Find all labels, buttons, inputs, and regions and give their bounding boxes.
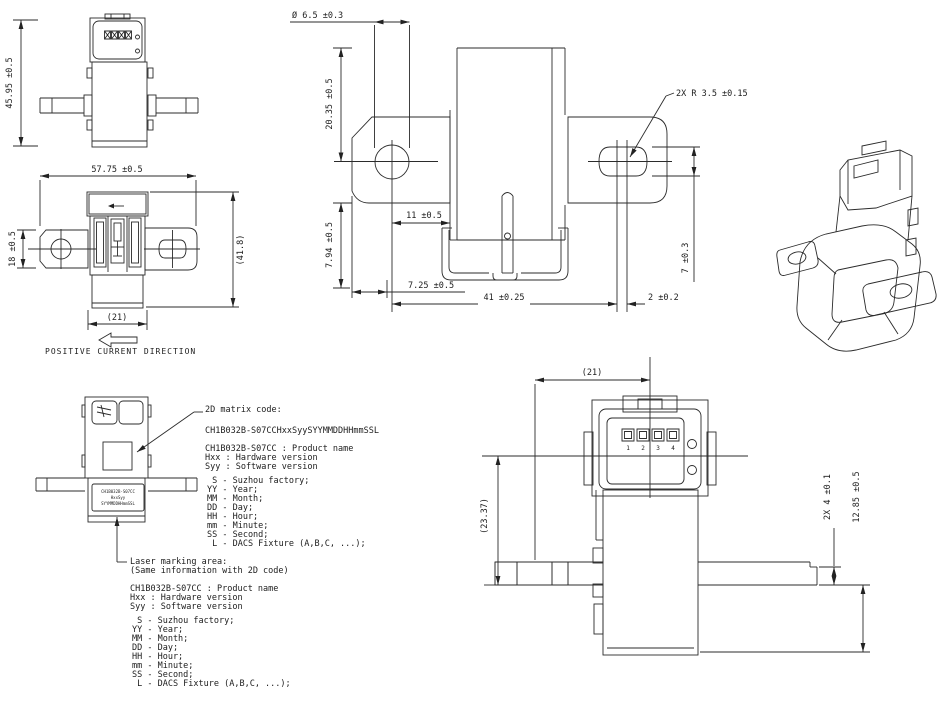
- matrix-code-software: Syy : Software version: [205, 462, 318, 472]
- laser-marking-line-3: SYYMMDDHHmmSSL: [101, 501, 135, 506]
- dim-bottom-view-radius: 2X R 3.5 ±0.15: [676, 89, 748, 99]
- laser-software: Syy : Software version: [130, 602, 243, 612]
- laser-subtitle: (Same information with 2D code): [130, 566, 289, 576]
- side-view-pin-labels: 1 2 3 4: [626, 445, 675, 452]
- dim-bottom-view-2: 2 ±0.2: [648, 293, 679, 303]
- dim-front-view-width: 57.75 ±0.5: [91, 165, 142, 175]
- engineering-drawing-canvas: 45.95 ±0.5 57.75 ±0.5 (41.8): [0, 0, 952, 705]
- top-view-linework: [40, 14, 198, 147]
- pin-label-1: 1: [626, 445, 630, 452]
- dim-top-view-height: 45.95 ±0.5: [5, 57, 15, 108]
- matrix-code-annotation: 2D matrix code: CH1B032B-S07CCHxxSyySYYM…: [205, 405, 379, 549]
- pin-label-3: 3: [656, 445, 660, 452]
- side-view-linework: [482, 357, 817, 655]
- side-view-dimensions: (21) (23.37) 2X 4 ±0.1 12.85 ±0.5: [480, 368, 870, 652]
- laser-legend-7: L - DACS Fixture (A,B,C, ...);: [132, 679, 291, 689]
- dim-front-view-body-width: (21): [107, 313, 127, 323]
- laser-marking-line-1: CH1B032B-S07CC: [101, 489, 135, 494]
- dim-bottom-view-hole-dia: Ø 6.5 ±0.3: [292, 10, 343, 21]
- dim-bottom-view-725: 7.25 ±0.5: [408, 281, 454, 291]
- top-view-dimensions: 45.95 ±0.5: [5, 20, 38, 146]
- dim-bottom-view-794: 7.94 ±0.5: [325, 222, 335, 268]
- dim-front-view-ref-height: (41.8): [236, 235, 246, 266]
- matrix-code-string: CH1B032B-S07CCHxxSyySYYMMDDHHmmSSL: [205, 426, 379, 436]
- dim-side-view-2337: (23.37): [480, 498, 490, 534]
- bottom-view-dimensions: Ø 6.5 ±0.3 20.35 ±0.5 7.94 ±0.5 11 ±0.5 …: [290, 10, 748, 304]
- pin-label-4: 4: [671, 445, 675, 452]
- dim-side-view-21: (21): [582, 368, 602, 378]
- dim-side-view-1285: 12.85 ±0.5: [852, 471, 862, 522]
- dim-side-view-2x4: 2X 4 ±0.1: [823, 474, 833, 520]
- matrix-code-title: 2D matrix code:: [205, 405, 282, 415]
- dim-bottom-view-41: 41 ±0.25: [484, 293, 525, 303]
- dim-bottom-view-11: 11 ±0.5: [406, 211, 442, 221]
- bottom-view-linework: [334, 48, 672, 312]
- marking-view-texts: CH1B032B-S07CC HxxSyy SYYMMDDHHmmSSL: [101, 489, 135, 506]
- laser-marking-annotation: Laser marking area: (Same information wi…: [130, 557, 291, 689]
- isometric-view-linework: [777, 141, 936, 351]
- dim-front-view-tab-height: 18 ±0.5: [8, 231, 18, 267]
- matrix-legend-7: L - DACS Fixture (A,B,C, ...);: [207, 539, 366, 549]
- positive-current-direction-label: POSITIVE CURRENT DIRECTION: [45, 347, 196, 356]
- dim-bottom-view-tab-h: 20.35 ±0.5: [325, 78, 335, 129]
- annotation-leaders: [117, 412, 203, 562]
- laser-marking-line-2: HxxSyy: [111, 495, 126, 500]
- dim-bottom-view-7: 7 ±0.3: [681, 243, 691, 274]
- pin-label-2: 2: [641, 445, 645, 452]
